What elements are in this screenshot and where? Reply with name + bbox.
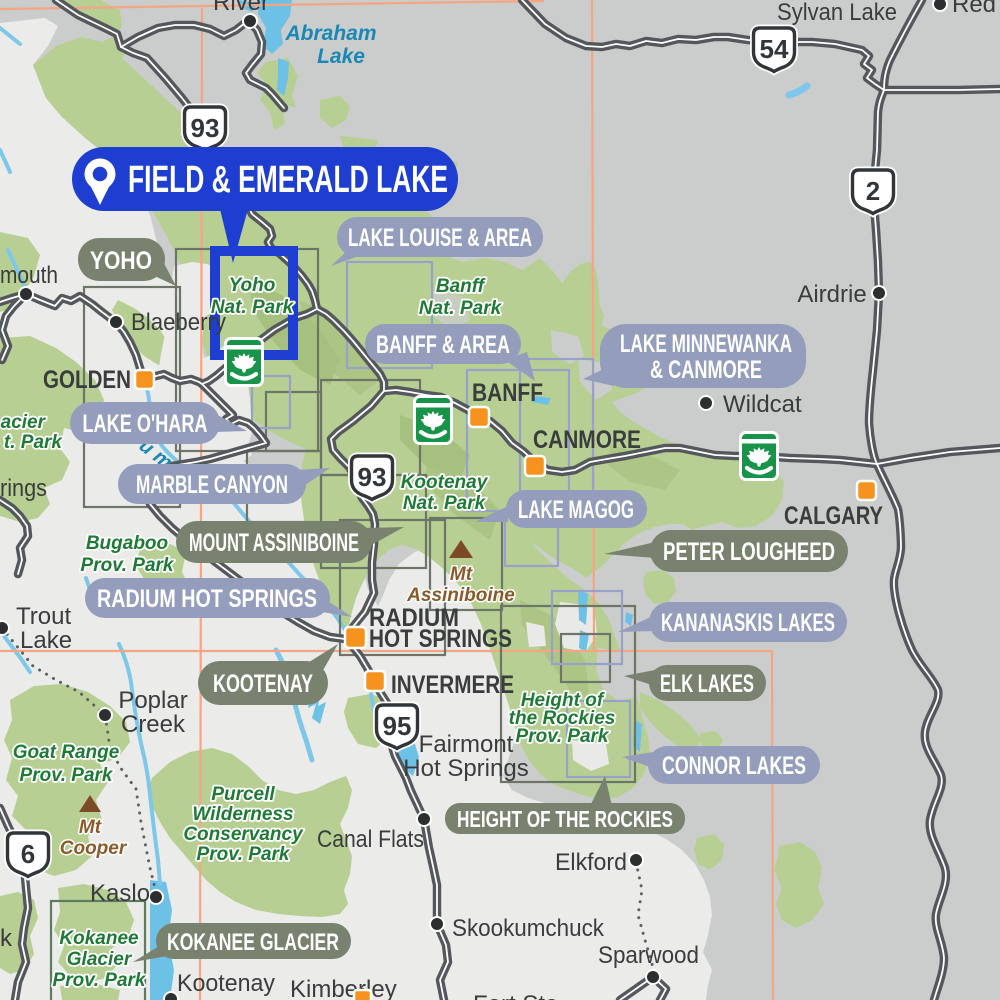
svg-text:93: 93 xyxy=(358,462,387,492)
svg-text:Bugaboo: Bugaboo xyxy=(86,533,168,554)
svg-text:& CANMORE: & CANMORE xyxy=(650,356,762,384)
svg-text:LAKE LOUISE & AREA: LAKE LOUISE & AREA xyxy=(348,224,532,252)
svg-text:Prov. Park: Prov. Park xyxy=(53,970,147,991)
svg-text:2: 2 xyxy=(866,176,880,206)
svg-text:LAKE MAGOG: LAKE MAGOG xyxy=(518,496,634,524)
svg-text:Prov. Park: Prov. Park xyxy=(20,765,114,786)
svg-text:Assiniboine: Assiniboine xyxy=(406,585,515,606)
svg-text:Conservancy: Conservancy xyxy=(183,824,304,845)
svg-text:HEIGHT OF THE ROCKIES: HEIGHT OF THE ROCKIES xyxy=(457,806,673,832)
svg-text:Red Deer: Red Deer xyxy=(952,0,1000,18)
svg-text:KOKANEE GLACIER: KOKANEE GLACIER xyxy=(167,929,339,956)
svg-text:Canal Flats: Canal Flats xyxy=(317,826,424,853)
svg-text:River: River xyxy=(213,0,269,16)
svg-text:93: 93 xyxy=(191,113,220,143)
svg-text:95: 95 xyxy=(383,711,412,741)
svg-text:MARBLE CANYON: MARBLE CANYON xyxy=(136,471,288,499)
svg-text:Skookumchuck: Skookumchuck xyxy=(452,915,605,942)
svg-text:Cooper: Cooper xyxy=(60,838,128,859)
svg-text:MOUNT ASSINIBOINE: MOUNT ASSINIBOINE xyxy=(189,529,359,557)
svg-text:Banff: Banff xyxy=(436,276,486,297)
svg-text:Prov. Park: Prov. Park xyxy=(197,844,291,865)
svg-text:Kootenay: Kootenay xyxy=(401,472,489,493)
svg-text:t. Park: t. Park xyxy=(4,432,64,453)
svg-text:HOT SPRINGS: HOT SPRINGS xyxy=(369,625,512,653)
svg-text:ELK LAKES: ELK LAKES xyxy=(660,670,754,698)
svg-text:Blaeberry: Blaeberry xyxy=(131,309,226,336)
svg-text:Prov. Park: Prov. Park xyxy=(516,726,610,747)
svg-text:Lake: Lake xyxy=(20,627,72,654)
svg-text:Trout: Trout xyxy=(16,603,71,630)
svg-text:Hot Springs: Hot Springs xyxy=(403,755,528,782)
svg-text:INVERMERE: INVERMERE xyxy=(391,671,514,699)
svg-text:Poplar: Poplar xyxy=(118,687,187,714)
svg-text:GOLDEN: GOLDEN xyxy=(43,366,131,394)
svg-text:Kaslo: Kaslo xyxy=(90,880,150,907)
svg-text:Prov. Park: Prov. Park xyxy=(81,555,175,576)
svg-text:Sylvan Lake: Sylvan Lake xyxy=(777,0,897,26)
svg-text:Elkford: Elkford xyxy=(555,849,627,876)
svg-text:KOOTENAY: KOOTENAY xyxy=(213,670,313,698)
svg-text:54: 54 xyxy=(760,34,789,64)
svg-text:RADIUM HOT SPRINGS: RADIUM HOT SPRINGS xyxy=(97,585,317,613)
svg-text:Sparwood: Sparwood xyxy=(598,942,699,969)
svg-text:Glacier: Glacier xyxy=(67,949,133,970)
svg-text:BANFF: BANFF xyxy=(472,379,543,407)
svg-text:PETER LOUGHEED: PETER LOUGHEED xyxy=(663,538,835,566)
svg-text:mouth: mouth xyxy=(0,262,58,289)
svg-text:Abraham: Abraham xyxy=(284,22,376,45)
svg-text:Nat. Park: Nat. Park xyxy=(403,493,487,514)
svg-text:BANFF & AREA: BANFF & AREA xyxy=(376,331,510,359)
svg-text:rings: rings xyxy=(0,475,47,502)
svg-text:LAKE O'HARA: LAKE O'HARA xyxy=(83,410,208,438)
svg-text:Creek: Creek xyxy=(121,711,186,738)
svg-text:Wilderness: Wilderness xyxy=(192,804,293,825)
svg-text:Kokanee: Kokanee xyxy=(59,928,139,949)
svg-text:Kootenay: Kootenay xyxy=(177,970,275,997)
svg-text:Fairmont: Fairmont xyxy=(419,731,514,758)
svg-text:Airdrie: Airdrie xyxy=(797,281,866,308)
svg-text:Lake: Lake xyxy=(317,45,365,68)
svg-text:Nat. Park: Nat. Park xyxy=(419,298,503,319)
svg-text:FIELD & EMERALD LAKE: FIELD & EMERALD LAKE xyxy=(128,159,448,201)
svg-text:Kimberley: Kimberley xyxy=(290,976,397,1000)
svg-text:Wildcat: Wildcat xyxy=(723,391,802,418)
svg-text:CANMORE: CANMORE xyxy=(533,426,641,454)
svg-text:KANANASKIS LAKES: KANANASKIS LAKES xyxy=(661,609,835,637)
svg-text:Goat Range: Goat Range xyxy=(13,742,120,763)
svg-text:YOHO: YOHO xyxy=(90,247,152,275)
svg-text:CONNOR LAKES: CONNOR LAKES xyxy=(662,752,806,780)
svg-text:Fort Ste: Fort Ste xyxy=(473,991,558,1000)
svg-text:Mt: Mt xyxy=(450,564,473,585)
svg-text:LAKE MINNEWANKA: LAKE MINNEWANKA xyxy=(620,330,792,358)
svg-text:k: k xyxy=(0,925,13,952)
svg-text:Yoho: Yoho xyxy=(229,275,276,296)
svg-text:Mt: Mt xyxy=(79,817,102,838)
svg-text:acier: acier xyxy=(1,412,47,433)
svg-text:6: 6 xyxy=(21,839,35,869)
svg-text:Purcell: Purcell xyxy=(211,784,275,805)
svg-text:CALGARY: CALGARY xyxy=(784,502,883,530)
